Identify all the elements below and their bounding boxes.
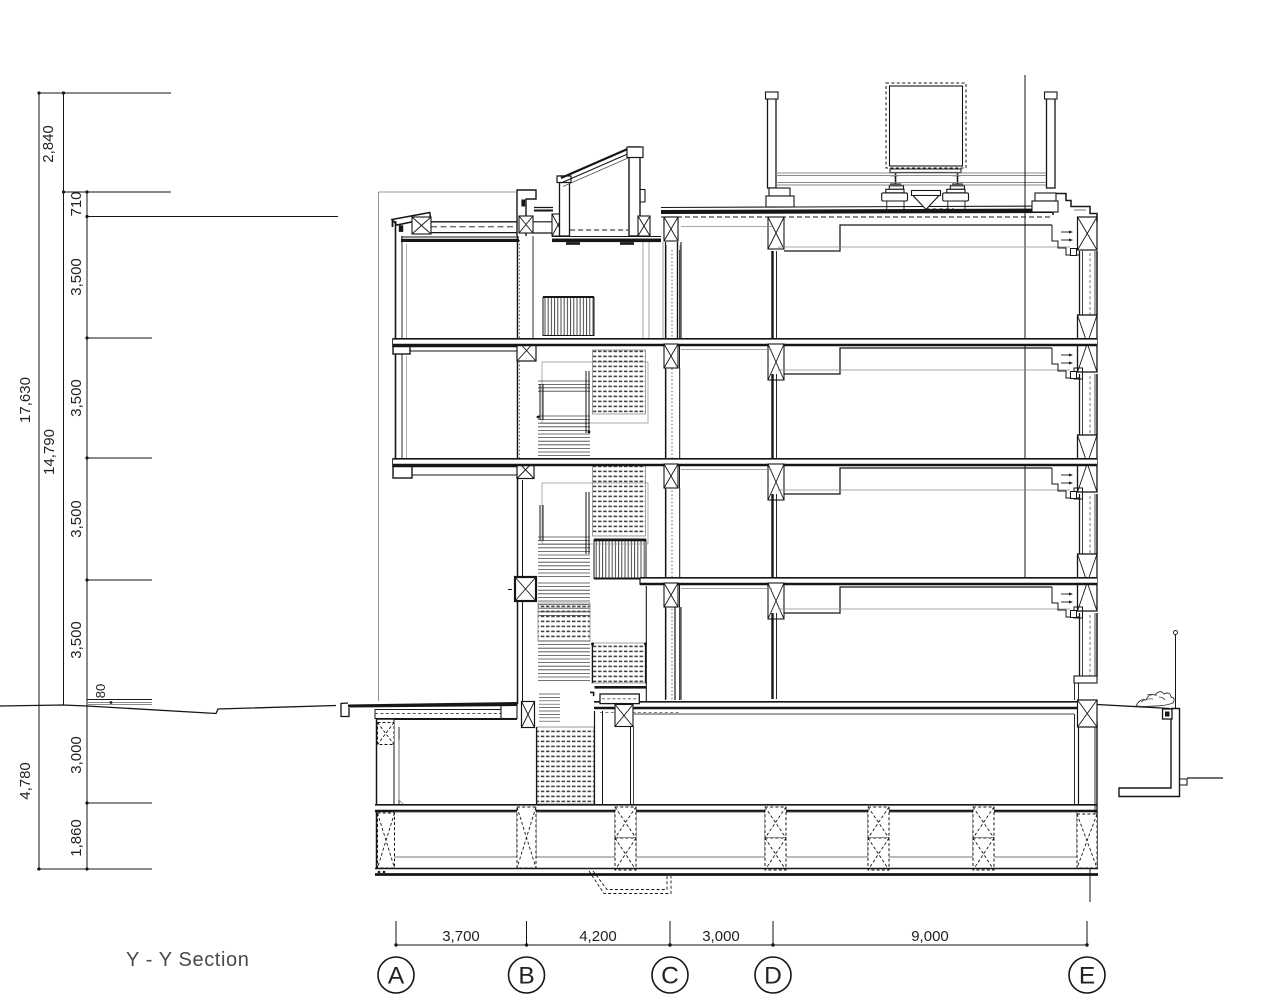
svg-text:4,200: 4,200 xyxy=(579,928,617,945)
svg-text:1,860: 1,860 xyxy=(68,819,85,857)
svg-text:80: 80 xyxy=(93,684,108,698)
svg-text:710: 710 xyxy=(68,191,85,216)
svg-text:3,000: 3,000 xyxy=(68,736,85,774)
svg-text:3,500: 3,500 xyxy=(68,500,85,538)
svg-text:3,700: 3,700 xyxy=(442,928,480,945)
svg-text:4,780: 4,780 xyxy=(17,762,34,800)
svg-text:3,500: 3,500 xyxy=(68,379,85,417)
svg-text:D: D xyxy=(764,963,782,990)
svg-text:17,630: 17,630 xyxy=(17,377,34,423)
svg-text:3,500: 3,500 xyxy=(68,621,85,659)
svg-text:B: B xyxy=(518,963,534,990)
svg-text:2,840: 2,840 xyxy=(40,125,57,163)
svg-text:3,000: 3,000 xyxy=(702,928,740,945)
svg-text:14,790: 14,790 xyxy=(41,429,58,475)
svg-text:9,000: 9,000 xyxy=(911,928,949,945)
svg-text:Y - Y Section: Y - Y Section xyxy=(126,949,249,971)
svg-text:A: A xyxy=(388,963,405,990)
svg-text:E: E xyxy=(1079,963,1095,990)
svg-text:3,500: 3,500 xyxy=(68,258,85,296)
svg-text:C: C xyxy=(661,963,679,990)
